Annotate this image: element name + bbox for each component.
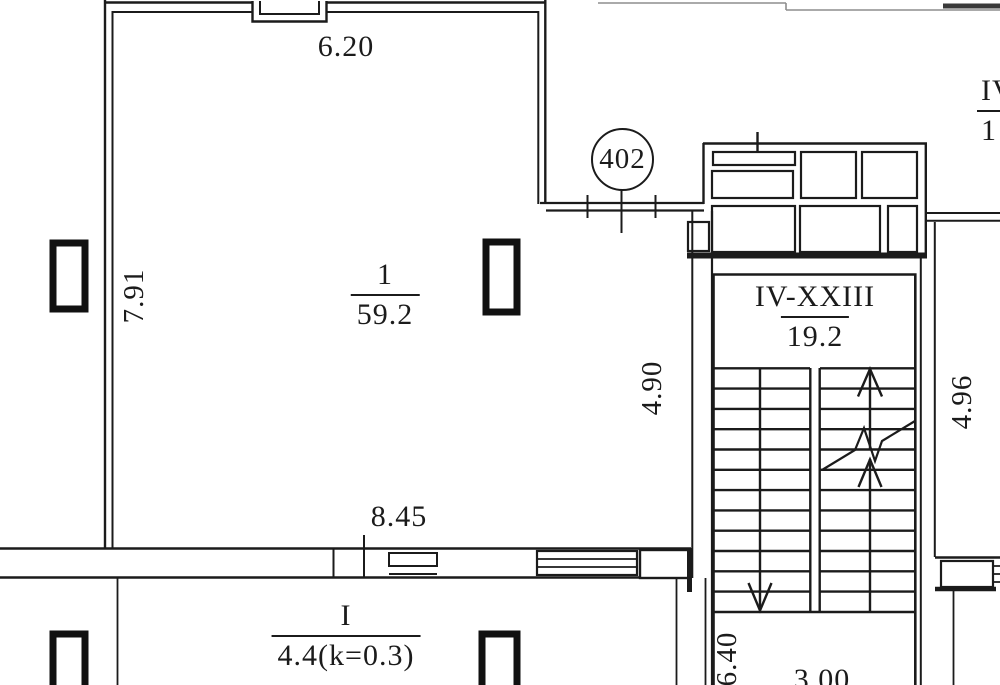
window-symbol: [537, 551, 637, 575]
stairwell-label: IV-XXIII 19.2: [751, 280, 879, 354]
column: [486, 242, 517, 312]
dimension-landing-width: 3.00: [794, 663, 851, 685]
unit-number: 402: [599, 143, 646, 176]
room-number: IV: [977, 74, 1000, 110]
dimension-left-height: 7.91: [117, 248, 151, 344]
column: [53, 243, 85, 309]
dimension-stair-right-height: 4.96: [945, 354, 979, 450]
dimension-stair-bottom-height: 6.40: [710, 611, 744, 685]
stair-treads: [713, 368, 916, 612]
room-number: IV-XXIII: [751, 280, 879, 316]
window-symbol: [941, 561, 993, 587]
shaft-block: [687, 132, 1000, 258]
adjacent-unit-label: IV 1: [977, 74, 1000, 148]
dimension-top-width: 6.20: [318, 30, 375, 63]
column: [482, 634, 517, 685]
room-area: 19.2: [781, 316, 850, 355]
room-number: 1: [373, 258, 397, 294]
unit-number-badge: 402: [591, 128, 654, 191]
top-edge-remnants: [598, 3, 1000, 10]
room-area: 4.4(k=0.3): [272, 635, 421, 674]
top-wall-niche: [253, 1, 327, 22]
room-area: 59.2: [351, 294, 420, 333]
dimension-room1-inner-height: 4.90: [635, 340, 669, 436]
window-symbol: [389, 553, 437, 566]
room-area: 1: [977, 110, 1000, 149]
room-i-label: I 4.4(k=0.3): [272, 599, 421, 673]
stair-stringer: [810, 368, 819, 612]
room-1-label: 1 59.2: [351, 258, 420, 332]
column: [53, 634, 85, 685]
room-number: I: [337, 599, 356, 635]
dimension-bottom-width: 8.45: [371, 500, 428, 533]
floor-plan: 6.20 7.91 4.90 4.96 8.45 6.40 3.00 402 1…: [0, 0, 1000, 685]
